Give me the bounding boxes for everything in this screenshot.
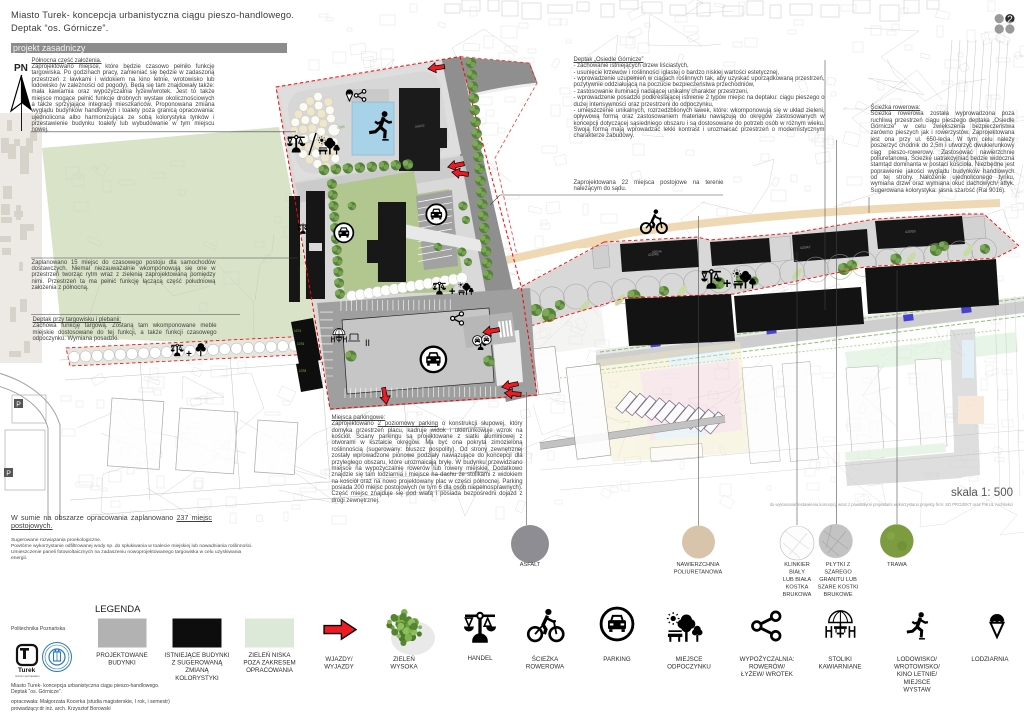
svg-text:WYSOKA: WYSOKA xyxy=(390,664,418,671)
svg-text:ISTNIEJĄCE BUDYNKI: ISTNIEJĄCE BUDYNKI xyxy=(165,652,230,659)
svg-text:ZIELEŃ NISKA: ZIELEŃ NISKA xyxy=(249,652,292,659)
svg-text:P: P xyxy=(16,402,21,409)
svg-text:420/50: 420/50 xyxy=(905,229,916,234)
svg-text:ŁYŻEW/ WROTEK: ŁYŻEW/ WROTEK xyxy=(741,671,794,678)
svg-text:SZARE KOSTKI: SZARE KOSTKI xyxy=(818,585,859,591)
svg-text:NAWIERZCHNIA: NAWIERZCHNIA xyxy=(677,562,720,568)
svg-text:BRUKOWE: BRUKOWE xyxy=(824,592,853,598)
svg-text:+: + xyxy=(723,275,731,291)
svg-text:MIEJSCE: MIEJSCE xyxy=(676,656,703,663)
svg-text:KLINKIER: KLINKIER xyxy=(784,562,810,568)
svg-text:PROJEKTOWANE: PROJEKTOWANE xyxy=(96,652,148,659)
svg-text:WJAZDY/: WJAZDY/ xyxy=(325,656,352,663)
svg-text:WYSTAW: WYSTAW xyxy=(903,686,930,693)
svg-text:ROWERÓW/: ROWERÓW/ xyxy=(749,664,785,671)
svg-text:WROTOWISKO/: WROTOWISKO/ xyxy=(894,664,940,671)
svg-text:LODZIARNIA: LODZIARNIA xyxy=(971,656,1009,663)
svg-text:LUB BIAŁA: LUB BIAŁA xyxy=(783,577,812,583)
svg-text:centrum poznawalem: centrum poznawalem xyxy=(15,674,40,678)
svg-text:KINO LETNIE/: KINO LETNIE/ xyxy=(897,671,938,678)
svg-text:P: P xyxy=(6,471,11,478)
svg-text:POZA ZAKRESEM: POZA ZAKRESEM xyxy=(243,660,295,667)
svg-text:GRANITU LUB: GRANITU LUB xyxy=(819,577,857,583)
svg-text:ROWEROWA: ROWEROWA xyxy=(526,664,565,671)
svg-text:KOLORYSTYKI: KOLORYSTYKI xyxy=(175,675,219,682)
svg-text:KOSTKA: KOSTKA xyxy=(786,585,809,591)
svg-text:+: + xyxy=(186,349,192,360)
svg-text:1076: 1076 xyxy=(297,342,304,346)
svg-text:2: 2 xyxy=(1007,13,1013,25)
svg-text:BIAŁY: BIAŁY xyxy=(789,570,805,576)
svg-text:PŁYTKI Z: PŁYTKI Z xyxy=(826,562,851,568)
svg-text:TRAWA: TRAWA xyxy=(887,562,907,568)
svg-text:STOLIKI: STOLIKI xyxy=(828,656,852,663)
svg-text:PARKING: PARKING xyxy=(603,656,631,663)
svg-text:ŚCIEŻKA: ŚCIEŻKA xyxy=(532,655,559,663)
svg-text:WYJAZDY: WYJAZDY xyxy=(324,664,354,671)
svg-text:WYPOŻYCZALNIA:: WYPOŻYCZALNIA: xyxy=(740,656,795,663)
svg-text:1074: 1074 xyxy=(294,329,301,333)
svg-text:ODPOCZYNKU: ODPOCZYNKU xyxy=(667,664,711,671)
svg-text:ZMIANĄ: ZMIANĄ xyxy=(185,667,209,674)
svg-text:LEGENDA: LEGENDA xyxy=(95,604,141,615)
svg-text:Z SUGEROWANĄ: Z SUGEROWANĄ xyxy=(172,660,224,667)
svg-text:Turek: Turek xyxy=(18,667,36,674)
svg-text:II: II xyxy=(365,338,370,348)
svg-text:BUDYNKI: BUDYNKI xyxy=(108,660,136,667)
svg-text:HANDEL: HANDEL xyxy=(467,655,493,662)
svg-text:420/46: 420/46 xyxy=(652,249,662,254)
svg-text:1078: 1078 xyxy=(299,369,306,373)
svg-text:BRUKOWA: BRUKOWA xyxy=(783,592,812,598)
svg-text:MIEJSCE: MIEJSCE xyxy=(904,679,931,686)
svg-text:420/47: 420/47 xyxy=(800,245,811,250)
svg-text:LODOWISKO/: LODOWISKO/ xyxy=(897,656,937,663)
svg-text:POLIURETANOWA: POLIURETANOWA xyxy=(674,570,723,576)
svg-text:OPRACOWANIA: OPRACOWANIA xyxy=(246,667,294,674)
svg-text:ASFALT: ASFALT xyxy=(520,562,541,568)
svg-text:SZAREGO: SZAREGO xyxy=(824,570,852,576)
svg-text:KAWIARNIANE: KAWIARNIANE xyxy=(818,664,861,671)
svg-text:+: + xyxy=(449,286,455,298)
svg-text:ZIELEŃ: ZIELEŃ xyxy=(393,656,415,663)
